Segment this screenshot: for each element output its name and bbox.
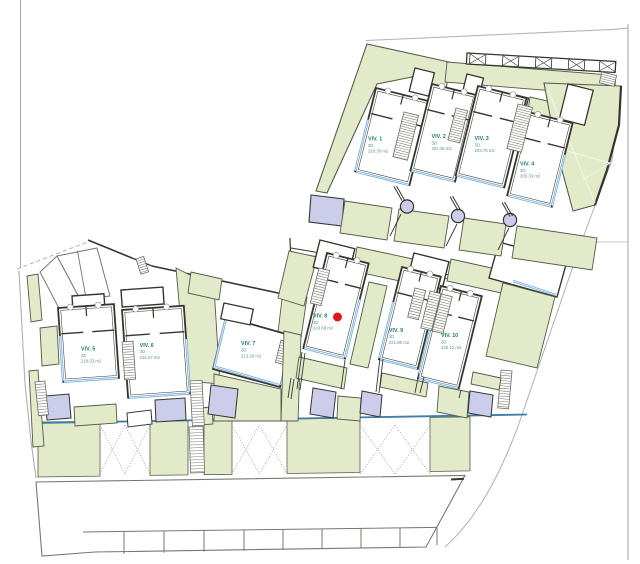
svg-text:3D: 3D	[313, 320, 319, 325]
svg-text:243.68 m2: 243.68 m2	[313, 326, 334, 331]
svg-text:3D: 3D	[389, 334, 395, 339]
svg-text:3D: 3D	[368, 143, 374, 148]
svg-text:202.45 m2: 202.45 m2	[432, 146, 453, 151]
svg-text:213.26 m2: 213.26 m2	[241, 354, 262, 359]
svg-text:3D: 3D	[241, 348, 247, 353]
svg-text:VIV. 9: VIV. 9	[389, 328, 403, 334]
svg-text:VIV. 6: VIV. 6	[140, 343, 154, 349]
svg-text:VIV. 4: VIV. 4	[520, 162, 534, 168]
svg-text:VIV. 5: VIV. 5	[81, 347, 95, 353]
svg-text:235.12 m2: 235.12 m2	[441, 345, 462, 350]
svg-text:3D: 3D	[475, 142, 481, 147]
svg-text:3D: 3D	[81, 353, 87, 358]
svg-text:VIV. 10: VIV. 10	[441, 333, 458, 339]
svg-text:VIV. 8: VIV. 8	[313, 314, 327, 320]
svg-text:3D: 3D	[441, 339, 447, 344]
svg-text:215.47 m2: 215.47 m2	[140, 355, 161, 360]
svg-text:VIV. 2: VIV. 2	[432, 134, 446, 140]
svg-text:VIV. 3: VIV. 3	[475, 136, 489, 142]
svg-text:219.36 m2: 219.36 m2	[368, 149, 389, 154]
svg-text:219.53 m2: 219.53 m2	[81, 359, 102, 364]
svg-text:3D: 3D	[432, 140, 438, 145]
svg-text:221.86 m2: 221.86 m2	[389, 340, 410, 345]
svg-text:3D: 3D	[520, 168, 526, 173]
svg-text:3D: 3D	[140, 349, 146, 354]
svg-text:203.75 m2: 203.75 m2	[475, 148, 496, 153]
svg-text:VIV. 1: VIV. 1	[368, 137, 382, 143]
svg-text:209.33 m2: 209.33 m2	[520, 174, 541, 179]
svg-text:VIV. 7: VIV. 7	[241, 341, 255, 347]
